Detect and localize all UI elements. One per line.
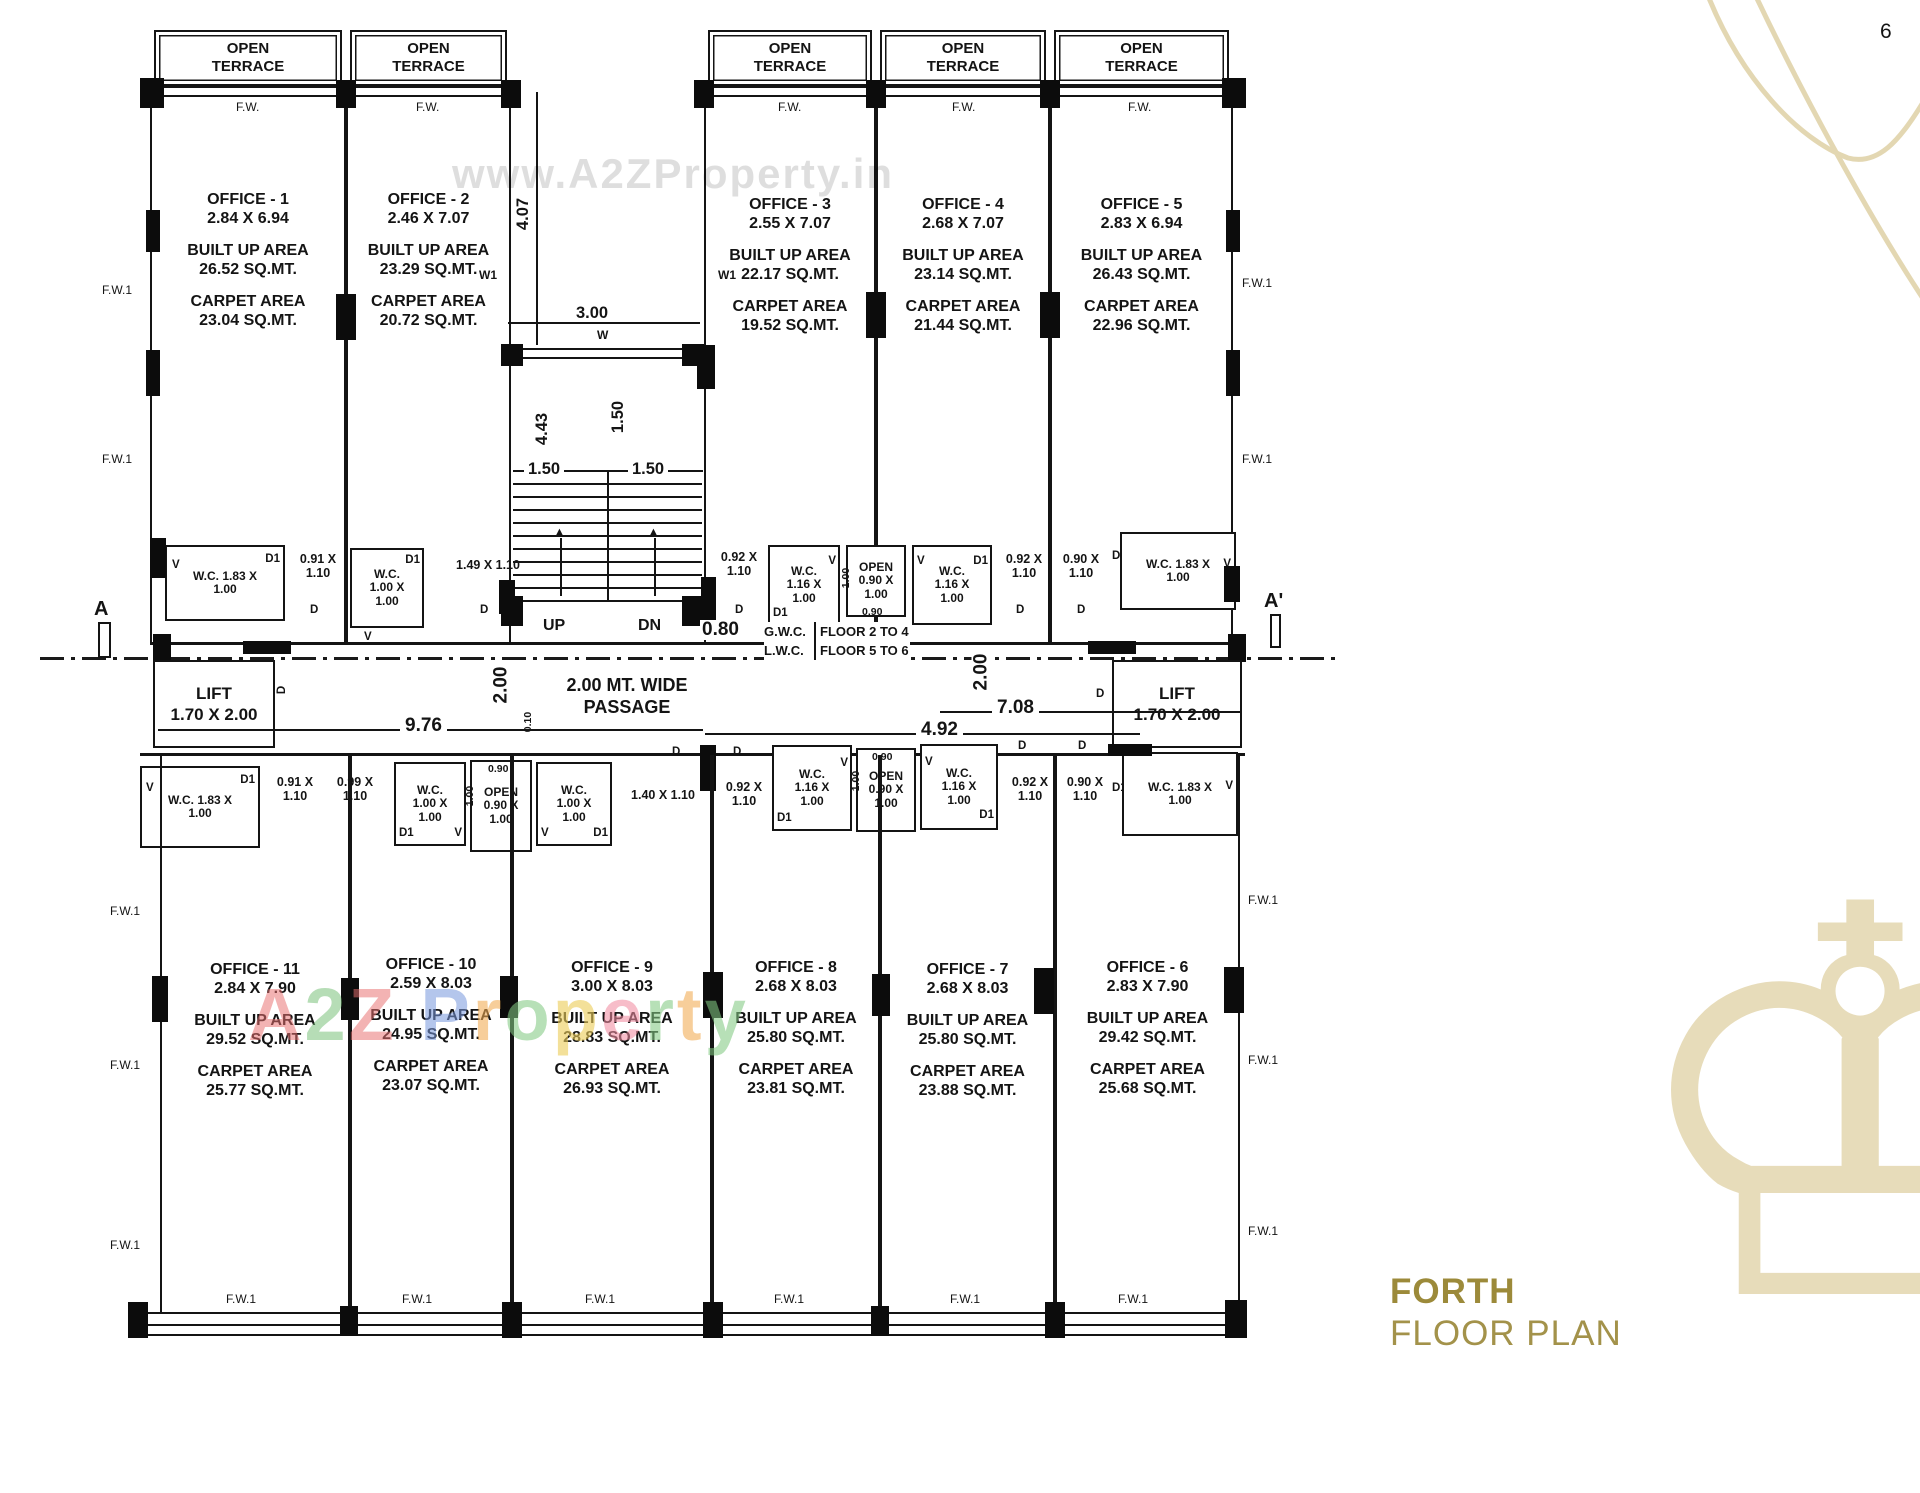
column-block xyxy=(336,294,356,340)
gwc-note: G.W.C. FLOOR 2 TO 4 L.W.C. FLOOR 5 TO 6 xyxy=(764,622,910,660)
column-block xyxy=(146,350,160,396)
fw1-label: F.W.1 xyxy=(585,1292,615,1306)
plan-title-line2: FLOOR PLAN xyxy=(1390,1314,1622,1354)
carpet-label: CARPET AREA xyxy=(878,297,1048,316)
fw1-label: F.W.1 xyxy=(110,904,140,918)
stair-dn-label: DN xyxy=(638,617,661,635)
office-1-info: OFFICE - 1 2.84 X 6.94 BUILT UP AREA 26.… xyxy=(152,190,344,330)
fw-label: F.W. xyxy=(416,100,439,114)
open-shaft-label: OPEN 0.90 X 1.00 xyxy=(853,561,899,602)
carpet-label: CARPET AREA xyxy=(162,1062,348,1081)
wc-label: W.C. 1.83 X 1.00 xyxy=(1142,558,1214,585)
stair-arrow-line xyxy=(654,538,656,596)
carpet-value: 25.68 SQ.MT. xyxy=(1057,1079,1238,1098)
built-up-label: BUILT UP AREA xyxy=(514,1009,710,1028)
open-terrace-4: OPEN TERRACE xyxy=(880,30,1046,86)
column-block xyxy=(1222,78,1246,108)
office-size: 2.83 X 6.94 xyxy=(1052,214,1231,233)
column-block xyxy=(341,978,359,1020)
open-terrace-3: OPEN TERRACE xyxy=(708,30,872,86)
gap-dim: 0.91 X 1.10 xyxy=(290,552,346,580)
fw-label: F.W. xyxy=(778,100,801,114)
column-block xyxy=(701,577,716,623)
built-up-value: 23.14 SQ.MT. xyxy=(878,265,1048,284)
chess-king-logo: ♔ xyxy=(1618,838,1920,1378)
wc-room: W.C. 1.00 X 1.00 D1 xyxy=(350,548,424,628)
shaft-dim-100: 1.00 xyxy=(840,568,852,588)
fw1-label: F.W.1 xyxy=(1248,1224,1278,1238)
lift-dim: 1.70 X 2.00 xyxy=(171,704,258,725)
column-block xyxy=(1224,967,1244,1013)
dim-4-43: 4.43 xyxy=(533,409,551,449)
page-number: 6 xyxy=(1880,20,1892,44)
built-up-label: BUILT UP AREA xyxy=(162,1011,348,1030)
fw1-label: F.W.1 xyxy=(1248,893,1278,907)
door-label: D xyxy=(1077,604,1085,616)
fw1-label: F.W.1 xyxy=(1118,1292,1148,1306)
dim-1-50-vert: 1.50 xyxy=(609,397,627,437)
column-block xyxy=(1225,1300,1247,1338)
built-up-label: BUILT UP AREA xyxy=(1057,1009,1238,1028)
carpet-label: CARPET AREA xyxy=(706,297,874,316)
carpet-value: 21.44 SQ.MT. xyxy=(878,316,1048,335)
carpet-value: 23.81 SQ.MT. xyxy=(714,1079,878,1098)
column-block xyxy=(871,1306,889,1336)
column-block xyxy=(872,974,890,1016)
gwc-cell: L.W.C. xyxy=(764,641,814,660)
column-block xyxy=(1226,350,1240,396)
bottom-outer-wall xyxy=(128,1312,1245,1326)
office-name: OFFICE - 1 xyxy=(152,190,344,209)
carpet-value: 20.72 SQ.MT. xyxy=(348,311,509,330)
built-up-label: BUILT UP AREA xyxy=(882,1011,1053,1030)
carpet-label: CARPET AREA xyxy=(714,1060,878,1079)
column-block xyxy=(697,345,715,389)
dim-9-76: 9.76 xyxy=(400,716,447,736)
fw1-label: F.W.1 xyxy=(102,452,132,466)
office-8-info: OFFICE - 8 2.68 X 8.03 BUILT UP AREA 25.… xyxy=(714,958,878,1098)
office-2-info: OFFICE - 2 2.46 X 7.07 BUILT UP AREA 23.… xyxy=(348,190,509,330)
column-block xyxy=(1226,210,1240,252)
column-block xyxy=(502,1302,522,1338)
fw1-label: F.W.1 xyxy=(402,1292,432,1306)
office-6-info: OFFICE - 6 2.83 X 7.90 BUILT UP AREA 29.… xyxy=(1057,958,1238,1098)
carpet-label: CARPET AREA xyxy=(514,1060,710,1079)
dim-4-92: 4.92 xyxy=(916,720,963,740)
fw-wall xyxy=(1050,86,1233,97)
wc-room: V W.C. 1.16 X 1.00 D1 xyxy=(912,545,992,625)
column-block xyxy=(1045,1302,1065,1338)
office-name: OFFICE - 3 xyxy=(706,195,874,214)
stair-up-label: UP xyxy=(543,617,565,635)
built-up-value: 29.52 SQ.MT. xyxy=(162,1030,348,1049)
lift-left: LIFT 1.70 X 2.00 xyxy=(153,660,275,748)
carpet-label: CARPET AREA xyxy=(882,1062,1053,1081)
door-label: D xyxy=(1078,740,1086,752)
dim-line-7-08 xyxy=(940,711,1240,713)
dim-line-3-00 xyxy=(508,322,700,324)
vent-label: V xyxy=(917,555,925,569)
door-label: D xyxy=(1096,688,1104,700)
office-name: OFFICE - 10 xyxy=(352,955,510,974)
built-up-label: BUILT UP AREA xyxy=(706,246,874,265)
terrace-label: OPEN TERRACE xyxy=(202,40,294,76)
door-label: D xyxy=(1016,604,1024,616)
wc-room: V W.C. 1.83 X 1.00 D1 xyxy=(165,545,285,621)
carpet-value: 23.88 SQ.MT. xyxy=(882,1081,1053,1100)
door-label: D xyxy=(1018,740,1026,752)
carpet-value: 23.04 SQ.MT. xyxy=(152,311,344,330)
terrace-label: OPEN TERRACE xyxy=(1096,40,1188,76)
w-label: W xyxy=(597,328,608,342)
office-name: OFFICE - 2 xyxy=(348,190,509,209)
up-arrow-icon: ▲ xyxy=(648,526,659,538)
office-name: OFFICE - 8 xyxy=(714,958,878,977)
dim-2-00-left: 2.00 xyxy=(491,662,511,709)
column-block xyxy=(336,80,356,108)
built-up-value: 29.42 SQ.MT. xyxy=(1057,1028,1238,1047)
carpet-value: 19.52 SQ.MT. xyxy=(706,316,874,335)
office-size: 2.83 X 7.90 xyxy=(1057,977,1238,996)
door-label: D1 xyxy=(973,555,988,569)
column-block xyxy=(500,976,518,1018)
column-block xyxy=(866,292,886,338)
gwc-cell: FLOOR 5 TO 6 xyxy=(814,641,910,660)
column-block xyxy=(150,538,166,578)
office-size: 2.59 X 8.03 xyxy=(352,974,510,993)
dim-0-10: 0.10 xyxy=(522,712,534,732)
office-size: 2.68 X 8.03 xyxy=(714,977,878,996)
gap-dim: 0.92 X 1.10 xyxy=(998,552,1050,580)
floor-plan-drawing: OPEN TERRACE OPEN TERRACE OPEN TERRACE O… xyxy=(0,0,1360,1420)
column-block xyxy=(340,1306,358,1336)
column-block xyxy=(1034,968,1054,1014)
column-block xyxy=(146,210,160,252)
office-size: 2.68 X 8.03 xyxy=(882,979,1053,998)
dim-4-07: 4.07 xyxy=(514,194,532,234)
office-3-info: OFFICE - 3 2.55 X 7.07 BUILT UP AREA 22.… xyxy=(706,195,874,335)
gap-dim: 0.90 X 1.10 xyxy=(1056,552,1106,580)
office-10-info: OFFICE - 10 2.59 X 8.03 BUILT UP AREA 24… xyxy=(352,955,510,1095)
built-up-value: 25.80 SQ.MT. xyxy=(714,1028,878,1047)
column-block xyxy=(1228,634,1246,662)
door-label: D1 xyxy=(405,554,420,568)
built-up-label: BUILT UP AREA xyxy=(152,241,344,260)
built-up-value: 28.83 SQ.MT. xyxy=(514,1028,710,1047)
open-terrace-2: OPEN TERRACE xyxy=(350,30,507,86)
column-block xyxy=(703,1302,723,1338)
door-label: D xyxy=(735,604,743,616)
shaft-dim-090: 0.90 xyxy=(862,606,882,618)
vent-label: V xyxy=(146,782,154,796)
carpet-label: CARPET AREA xyxy=(352,1057,510,1076)
office-7-info: OFFICE - 7 2.68 X 8.03 BUILT UP AREA 25.… xyxy=(882,960,1053,1100)
office-name: OFFICE - 5 xyxy=(1052,195,1231,214)
office-size: 2.84 X 7.90 xyxy=(162,979,348,998)
passage-label: 2.00 MT. WIDE PASSAGE xyxy=(542,674,712,718)
wc-room: W.C. 1.16 X 1.00 D1 V xyxy=(768,545,840,625)
lift-dim: 1.70 X 2.00 xyxy=(1134,704,1221,725)
built-up-value: 26.52 SQ.MT. xyxy=(152,260,344,279)
fw1-label: F.W.1 xyxy=(950,1292,980,1306)
carpet-label: CARPET AREA xyxy=(152,292,344,311)
wall-block xyxy=(1088,641,1136,654)
wc-label: W.C. 1.83 X 1.00 xyxy=(189,570,261,597)
office-4-info: OFFICE - 4 2.68 X 7.07 BUILT UP AREA 23.… xyxy=(878,195,1048,335)
office-name: OFFICE - 11 xyxy=(162,960,348,979)
fw-wall xyxy=(876,86,1050,97)
built-up-label: BUILT UP AREA xyxy=(1052,246,1231,265)
carpet-value: 23.07 SQ.MT. xyxy=(352,1076,510,1095)
wc-room: W.C. 1.83 X 1.00 V xyxy=(1120,532,1236,610)
fw1-label: F.W.1 xyxy=(1242,276,1272,290)
lift-label: LIFT xyxy=(1159,683,1195,704)
fw1-label: F.W.1 xyxy=(226,1292,256,1306)
carpet-label: CARPET AREA xyxy=(1052,297,1231,316)
dim-3-00: 3.00 xyxy=(572,304,612,322)
dim-1-50-right: 1.50 xyxy=(628,460,668,478)
built-up-value: 22.17 SQ.MT. xyxy=(706,265,874,284)
section-marker-a-symbol xyxy=(98,622,111,658)
office-size: 3.00 X 8.03 xyxy=(514,977,710,996)
column-block xyxy=(501,344,523,366)
column-block xyxy=(866,80,886,108)
stair-divider xyxy=(607,470,609,602)
bottom-outer-wall-line xyxy=(128,1334,1245,1336)
passage-top-wall xyxy=(150,642,1240,645)
corner-decor-lines xyxy=(1400,0,1920,320)
office-name: OFFICE - 6 xyxy=(1057,958,1238,977)
fw-wall xyxy=(704,86,876,97)
built-up-value: 26.43 SQ.MT. xyxy=(1052,265,1231,284)
gwc-cell: G.W.C. xyxy=(764,622,814,641)
carpet-value: 25.77 SQ.MT. xyxy=(162,1081,348,1100)
fw1-label: F.W.1 xyxy=(1248,1053,1278,1067)
column-block xyxy=(153,634,171,662)
section-marker-a-prime: A' xyxy=(1264,590,1283,613)
door-label: D xyxy=(310,604,318,616)
column-block xyxy=(499,580,515,614)
fw1-label: F.W.1 xyxy=(102,283,132,297)
column-block xyxy=(1224,566,1240,602)
column-block xyxy=(152,976,168,1022)
door-label: D xyxy=(276,686,288,694)
column-block xyxy=(501,80,521,108)
terrace-label: OPEN TERRACE xyxy=(917,40,1009,76)
built-up-label: BUILT UP AREA xyxy=(352,1006,510,1025)
fw-wall xyxy=(150,86,346,97)
fw-wall xyxy=(346,86,511,97)
wc-label: W.C. 1.16 X 1.00 xyxy=(929,565,975,606)
built-up-value: 24.95 SQ.MT. xyxy=(352,1025,510,1044)
fw-label: F.W. xyxy=(952,100,975,114)
wc-label: W.C. 1.00 X 1.00 xyxy=(364,568,410,609)
office-name: OFFICE - 7 xyxy=(882,960,1053,979)
fw1-label: F.W.1 xyxy=(1242,452,1272,466)
office-name: OFFICE - 9 xyxy=(514,958,710,977)
stair-top-wall xyxy=(511,348,704,359)
dim-7-08: 7.08 xyxy=(992,698,1039,718)
fw1-label: F.W.1 xyxy=(774,1292,804,1306)
built-up-label: BUILT UP AREA xyxy=(878,246,1048,265)
dim-line-4-07 xyxy=(536,92,538,345)
built-up-label: BUILT UP AREA xyxy=(348,241,509,260)
office-9-info: OFFICE - 9 3.00 X 8.03 BUILT UP AREA 28.… xyxy=(514,958,710,1098)
floor-plan-page: { "page": {"number": "6"}, "watermarks":… xyxy=(0,0,1920,1493)
wall-block xyxy=(243,641,291,654)
column-block xyxy=(128,1302,148,1338)
terrace-label: OPEN TERRACE xyxy=(744,40,836,76)
plan-title-line1: FORTH xyxy=(1390,1272,1516,1312)
section-marker-a: A xyxy=(94,598,108,621)
carpet-value: 22.96 SQ.MT. xyxy=(1052,316,1231,335)
door-label: D xyxy=(480,604,488,616)
dim-0-80: 0.80 xyxy=(700,620,741,640)
dim-2-00-right: 2.00 xyxy=(971,649,991,696)
office-name: OFFICE - 4 xyxy=(878,195,1048,214)
office-size: 2.55 X 7.07 xyxy=(706,214,874,233)
office-11-info: OFFICE - 11 2.84 X 7.90 BUILT UP AREA 29… xyxy=(162,960,348,1100)
vent-label: V xyxy=(828,555,836,569)
carpet-label: CARPET AREA xyxy=(348,292,509,311)
column-block xyxy=(694,80,714,108)
carpet-label: CARPET AREA xyxy=(1057,1060,1238,1079)
gwc-cell: FLOOR 2 TO 4 xyxy=(814,622,910,641)
column-block xyxy=(140,78,164,108)
fw-label: F.W. xyxy=(236,100,259,114)
column-block xyxy=(1040,80,1060,108)
dim-1-50-left: 1.50 xyxy=(524,460,564,478)
office-size: 2.46 X 7.07 xyxy=(348,209,509,228)
fw1-label: F.W.1 xyxy=(110,1058,140,1072)
lift-right: LIFT 1.70 X 2.00 xyxy=(1112,660,1242,748)
built-up-value: 25.80 SQ.MT. xyxy=(882,1030,1053,1049)
terrace-label: OPEN TERRACE xyxy=(383,40,475,76)
office-size: 2.84 X 6.94 xyxy=(152,209,344,228)
wc-label: W.C. 1.16 X 1.00 xyxy=(781,565,827,606)
office-size: 2.68 X 7.07 xyxy=(878,214,1048,233)
gap-dim: 1.49 X 1.10 xyxy=(436,558,540,572)
door-label: D1 xyxy=(773,607,788,621)
fw-label: F.W. xyxy=(1128,100,1151,114)
section-marker-a-prime-symbol xyxy=(1270,614,1281,648)
stair-arrow-line xyxy=(560,538,562,596)
up-arrow-icon: ▲ xyxy=(554,526,565,538)
carpet-value: 26.93 SQ.MT. xyxy=(514,1079,710,1098)
column-block xyxy=(1040,292,1060,338)
fw1-label: F.W.1 xyxy=(110,1238,140,1252)
built-up-value: 23.29 SQ.MT. xyxy=(348,260,509,279)
vent-label: V xyxy=(172,559,180,573)
gap-dim: 0.92 X 1.10 xyxy=(712,550,766,578)
lift-label: LIFT xyxy=(196,683,232,704)
built-up-label: BUILT UP AREA xyxy=(714,1009,878,1028)
open-terrace-5: OPEN TERRACE xyxy=(1054,30,1229,86)
door-label: D1 xyxy=(265,553,280,567)
column-block xyxy=(703,972,723,1018)
office-5-info: OFFICE - 5 2.83 X 6.94 BUILT UP AREA 26.… xyxy=(1052,195,1231,335)
open-terrace-1: OPEN TERRACE xyxy=(154,30,342,86)
